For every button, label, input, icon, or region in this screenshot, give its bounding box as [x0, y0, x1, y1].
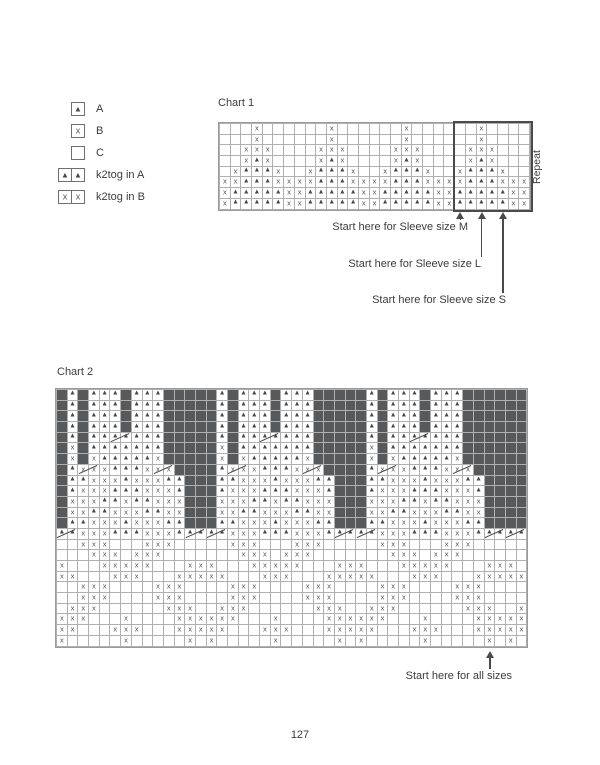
triangle-symbol: ▲ — [254, 189, 261, 196]
chart-cell — [378, 454, 388, 464]
chart-cell — [175, 422, 185, 432]
chart-cell — [346, 454, 356, 464]
chart-cell — [495, 518, 505, 528]
x-symbol: x — [103, 594, 107, 602]
x-symbol: x — [263, 626, 267, 634]
chart-cell: ▲ — [249, 433, 259, 443]
triangle-symbol: ▲ — [475, 487, 482, 494]
chart-cell: x — [239, 497, 249, 507]
x-symbol: x — [81, 497, 85, 505]
chart1-grid: xxxxxxxxxxxxxxxxxxxxx▲xx▲xx▲xx▲xx▲▲▲xx▲▲… — [218, 122, 531, 211]
chart-cell: x — [495, 572, 505, 582]
triangle-symbol: ▲ — [467, 189, 474, 196]
chart-cell: x — [452, 476, 462, 486]
triangle-symbol: ▲ — [112, 498, 119, 505]
chart-cell — [420, 550, 430, 560]
triangle-symbol: ▲ — [368, 391, 375, 398]
chart-cell — [517, 550, 527, 560]
triangle-symbol: ▲ — [475, 477, 482, 484]
chart-cell: ▲ — [477, 177, 487, 187]
chart-cell: x — [431, 561, 441, 571]
triangle-symbol: ▲ — [262, 466, 269, 473]
chart-cell: ▲ — [100, 433, 110, 443]
chart-cell: x — [466, 145, 476, 155]
chart-cell: ▲ — [442, 390, 452, 400]
triangle-symbol: ▲ — [264, 200, 271, 207]
x-symbol: x — [284, 476, 288, 484]
triangle-symbol: ▲ — [101, 444, 108, 451]
chart-cell — [506, 390, 516, 400]
chart-cell — [164, 411, 174, 421]
x-symbol: x — [362, 178, 366, 186]
chart-cell — [175, 443, 185, 453]
arrow-stem — [460, 218, 462, 220]
chart-cell: x — [281, 518, 291, 528]
x-symbol: x — [231, 465, 235, 473]
chart-cell — [57, 582, 67, 592]
chart-cell: ▲ — [292, 401, 302, 411]
chart-cell: ▲ — [271, 476, 281, 486]
chart-cell: x — [110, 518, 120, 528]
chart-cell — [485, 390, 495, 400]
chart-cell: x — [100, 476, 110, 486]
x-symbol: x — [330, 146, 334, 154]
x-symbol: x — [81, 465, 85, 473]
x-symbol: x — [71, 444, 75, 452]
triangle-symbol: ▲ — [304, 402, 311, 409]
triangle-symbol: ▲ — [294, 434, 301, 441]
chart-cell: ▲ — [231, 188, 241, 198]
triangle-symbol: ▲ — [339, 200, 346, 207]
chart-cell — [335, 411, 345, 421]
x-symbol: x — [394, 157, 398, 165]
triangle-symbol: ▲ — [475, 530, 482, 537]
chart-cell: x — [185, 625, 195, 635]
triangle-symbol: ▲ — [454, 444, 461, 451]
x-symbol: x — [455, 594, 459, 602]
chart-cell — [121, 593, 131, 603]
chart-cell: x — [89, 529, 99, 539]
triangle-symbol: ▲ — [232, 189, 239, 196]
chart-cell — [434, 145, 444, 155]
chart-cell — [455, 124, 465, 134]
chart-cell — [100, 572, 110, 582]
chart-cell: x — [410, 508, 420, 518]
chart-cell — [263, 124, 273, 134]
chart-cell: ▲ — [121, 443, 131, 453]
chart-cell: x — [132, 561, 142, 571]
chart-cell: ▲ — [58, 168, 72, 182]
chart-cell: x — [252, 124, 262, 134]
chart-cell — [412, 124, 422, 134]
chart-cell — [356, 540, 366, 550]
chart-cell: ▲ — [68, 422, 78, 432]
x-symbol: x — [338, 561, 342, 569]
x-symbol: x — [92, 551, 96, 559]
x-symbol: x — [381, 594, 385, 602]
chart-cell — [284, 156, 294, 166]
chart-cell: x — [185, 604, 195, 614]
triangle-symbol: ▲ — [254, 200, 261, 207]
chart-cell: ▲ — [252, 188, 262, 198]
chart-cell — [346, 443, 356, 453]
chart-cell: x — [78, 508, 88, 518]
chart-cell: x — [220, 188, 230, 198]
chart-cell — [356, 550, 366, 560]
chart-cell — [495, 443, 505, 453]
triangle-symbol: ▲ — [433, 530, 440, 537]
chart-cell: ▲ — [281, 443, 291, 453]
chart-cell: ▲ — [110, 401, 120, 411]
chart-cell: x — [239, 529, 249, 539]
x-symbol: x — [167, 594, 171, 602]
x-symbol: x — [145, 476, 149, 484]
legend-row: ▲▲k2tog in A — [56, 164, 145, 186]
chart-cell: x — [110, 572, 120, 582]
chart-cell — [303, 604, 313, 614]
chart-cell: x — [164, 593, 174, 603]
chart-cell: ▲ — [367, 518, 377, 528]
chart-cell — [153, 636, 163, 646]
chart-cell — [196, 422, 206, 432]
chart-cell — [485, 411, 495, 421]
chart-cell: ▲ — [100, 454, 110, 464]
x-symbol: x — [402, 583, 406, 591]
chart-cell — [231, 124, 241, 134]
triangle-symbol: ▲ — [390, 509, 397, 516]
chart-cell: x — [346, 614, 356, 624]
x-symbol: x — [210, 626, 214, 634]
chart-cell: ▲ — [100, 390, 110, 400]
chart-cell — [399, 604, 409, 614]
chart-cell — [517, 454, 527, 464]
chart-cell — [346, 390, 356, 400]
triangle-symbol: ▲ — [368, 477, 375, 484]
chart-cell: x — [68, 572, 78, 582]
chart-cell: ▲ — [281, 411, 291, 421]
x-symbol: x — [327, 572, 331, 580]
triangle-symbol: ▲ — [155, 444, 162, 451]
chart-cell — [474, 550, 484, 560]
x-symbol: x — [71, 626, 75, 634]
chart-cell: x — [388, 476, 398, 486]
chart-cell: ▲ — [100, 401, 110, 411]
chart-cell: ▲ — [228, 476, 238, 486]
triangle-symbol: ▲ — [379, 519, 386, 526]
triangle-symbol: ▲ — [294, 498, 301, 505]
triangle-symbol: ▲ — [400, 402, 407, 409]
chart-cell — [249, 636, 259, 646]
chart-cell: ▲ — [132, 411, 142, 421]
chart-cell: ▲ — [271, 486, 281, 496]
chart-cell — [348, 124, 358, 134]
triangle-symbol: ▲ — [251, 391, 258, 398]
chart-cell: ▲ — [303, 508, 313, 518]
triangle-symbol: ▲ — [433, 444, 440, 451]
x-symbol: x — [145, 561, 149, 569]
chart-cell — [380, 135, 390, 145]
chart-cell — [121, 604, 131, 614]
chart-cell — [463, 422, 473, 432]
chart-cell — [228, 561, 238, 571]
triangle-symbol: ▲ — [91, 391, 98, 398]
triangle-symbol: ▲ — [262, 434, 269, 441]
chart-cell — [335, 433, 345, 443]
chart-cell: ▲ — [228, 518, 238, 528]
chart-cell: x — [68, 497, 78, 507]
triangle-symbol: ▲ — [411, 391, 418, 398]
chart-cell: ▲ — [487, 199, 497, 209]
chart-cell: x — [249, 465, 259, 475]
chart-cell — [220, 167, 230, 177]
chart-cell: x — [327, 145, 337, 155]
empty-box-icon — [56, 146, 85, 160]
chart-cell — [273, 156, 283, 166]
chart-cell: x — [249, 540, 259, 550]
chart-cell: x — [474, 614, 484, 624]
chart-cell — [335, 465, 345, 475]
chart-cell — [207, 486, 217, 496]
chart-cell: x — [260, 518, 270, 528]
chart-cell: x — [306, 167, 316, 177]
chart-cell — [196, 508, 206, 518]
chart-cell: x — [284, 188, 294, 198]
chart-cell: ▲ — [367, 401, 377, 411]
x-in-box-icon: x — [56, 124, 85, 138]
chart-cell: ▲ — [292, 390, 302, 400]
chart-cell — [185, 390, 195, 400]
chart-cell: x — [442, 476, 452, 486]
x-symbol: x — [113, 476, 117, 484]
triangle-symbol: ▲ — [368, 412, 375, 419]
chart-cell: x — [477, 135, 487, 145]
triangle-symbol: ▲ — [264, 189, 271, 196]
chart-cell — [466, 124, 476, 134]
triangle-symbol: ▲ — [403, 168, 410, 175]
x-symbol: x — [466, 497, 470, 505]
chart-cell — [423, 124, 433, 134]
chart-cell: x — [164, 582, 174, 592]
chart-cell: x — [132, 518, 142, 528]
chart-cell: ▲ — [132, 454, 142, 464]
chart-cell — [217, 636, 227, 646]
triangle-symbol: ▲ — [400, 412, 407, 419]
x-symbol: x — [455, 551, 459, 559]
x-symbol: x — [455, 519, 459, 527]
chart-cell: ▲ — [423, 188, 433, 198]
x-symbol: x — [434, 519, 438, 527]
chart-cell — [485, 465, 495, 475]
chart-cell: x — [164, 604, 174, 614]
chart-cell: ▲ — [463, 518, 473, 528]
sleeve-size-s-label: Start here for Sleeve size S — [372, 294, 506, 306]
chart-cell — [410, 582, 420, 592]
triangle-symbol: ▲ — [454, 434, 461, 441]
triangle-symbol: ▲ — [467, 178, 474, 185]
chart-cell: x — [89, 593, 99, 603]
chart-cell: ▲ — [132, 401, 142, 411]
triangle-symbol: ▲ — [243, 189, 250, 196]
chart-cell: x — [57, 636, 67, 646]
chart-cell: x — [239, 518, 249, 528]
chart-cell: ▲ — [241, 177, 251, 187]
arrow-stem — [502, 218, 504, 293]
chart-cell: ▲ — [292, 422, 302, 432]
x-symbol: x — [255, 124, 259, 132]
chart-cell — [463, 390, 473, 400]
chart-cell — [207, 390, 217, 400]
triangle-symbol: ▲ — [507, 530, 514, 537]
chart-cell: x — [442, 486, 452, 496]
chart-cell: x — [292, 540, 302, 550]
chart-cell — [519, 124, 529, 134]
triangle-symbol: ▲ — [101, 391, 108, 398]
chart-cell: x — [292, 518, 302, 528]
x-symbol: x — [381, 465, 385, 473]
x-symbol: x — [381, 529, 385, 537]
x-symbol: x — [362, 189, 366, 197]
chart-cell: x — [399, 486, 409, 496]
chart-cell: ▲ — [420, 486, 430, 496]
triangle-symbol: ▲ — [411, 487, 418, 494]
chart-cell: x — [346, 625, 356, 635]
triangle-symbol: ▲ — [414, 178, 421, 185]
chart-cell: x — [402, 145, 412, 155]
chart-cell — [356, 476, 366, 486]
k2tog-triangle-icon: ▲▲ — [56, 168, 85, 182]
triangle-symbol: ▲ — [101, 402, 108, 409]
chart-cell: ▲ — [252, 199, 262, 209]
x-symbol: x — [156, 455, 160, 463]
chart-cell — [388, 636, 398, 646]
chart-cell: x — [185, 561, 195, 571]
triangle-symbol: ▲ — [392, 189, 399, 196]
chart-cell: x — [249, 518, 259, 528]
chart-cell: x — [164, 486, 174, 496]
chart-cell: x — [431, 572, 441, 582]
chart-cell — [378, 411, 388, 421]
chart-cell — [495, 433, 505, 443]
chart-cell — [370, 124, 380, 134]
chart-cell: x — [410, 572, 420, 582]
x-symbol: x — [113, 519, 117, 527]
x-symbol: x — [373, 189, 377, 197]
chart-cell: x — [399, 529, 409, 539]
x-symbol: x — [413, 519, 417, 527]
chart-cell — [196, 465, 206, 475]
chart-cell: ▲ — [252, 167, 262, 177]
x-symbol: x — [391, 476, 395, 484]
triangle-symbol: ▲ — [251, 498, 258, 505]
x-symbol: x — [306, 497, 310, 505]
chart-cell: x — [474, 593, 484, 603]
chart-cell: x — [228, 497, 238, 507]
chart-cell — [444, 145, 454, 155]
chart-cell: x — [132, 476, 142, 486]
x-symbol: x — [426, 167, 430, 175]
chart-cell: ▲ — [239, 422, 249, 432]
triangle-symbol: ▲ — [304, 412, 311, 419]
chart-cell — [241, 135, 251, 145]
chart-cell: x — [271, 625, 281, 635]
chart-cell: ▲ — [292, 508, 302, 518]
chart-cell — [78, 411, 88, 421]
chart-cell: ▲ — [217, 422, 227, 432]
chart-cell: ▲ — [175, 518, 185, 528]
chart-cell: x — [399, 550, 409, 560]
chart-cell: ▲ — [153, 422, 163, 432]
x-symbol: x — [306, 551, 310, 559]
chart-cell: ▲ — [431, 486, 441, 496]
triangle-symbol: ▲ — [262, 402, 269, 409]
x-symbol: x — [92, 540, 96, 548]
chart-cell — [452, 636, 462, 646]
triangle-symbol: ▲ — [69, 519, 76, 526]
chart-cell — [463, 401, 473, 411]
chart-cell: x — [420, 561, 430, 571]
triangle-symbol: ▲ — [262, 444, 269, 451]
triangle-symbol: ▲ — [133, 423, 140, 430]
x-symbol: x — [220, 615, 224, 623]
x-symbol: x — [210, 615, 214, 623]
chart-cell: ▲ — [260, 529, 270, 539]
chart-cell: ▲ — [303, 390, 313, 400]
chart-cell: ▲ — [498, 188, 508, 198]
chart-cell — [121, 411, 131, 421]
chart-cell: ▲ — [442, 411, 452, 421]
triangle-symbol: ▲ — [74, 104, 82, 113]
chart-cell: ▲ — [217, 433, 227, 443]
chart-cell: x — [474, 625, 484, 635]
chart-cell — [367, 540, 377, 550]
chart-cell — [175, 401, 185, 411]
chart-cell: x — [367, 604, 377, 614]
x-symbol: x — [437, 199, 441, 207]
chart-cell: ▲ — [78, 518, 88, 528]
x-symbol: x — [487, 636, 491, 644]
x-symbol: x — [445, 529, 449, 537]
chart-cell: x — [391, 156, 401, 166]
chart-cell: x — [153, 497, 163, 507]
chart-cell: x — [356, 625, 366, 635]
chart-cell: ▲ — [132, 497, 142, 507]
chart-cell — [434, 124, 444, 134]
x-symbol: x — [522, 199, 526, 207]
triangle-symbol: ▲ — [403, 200, 410, 207]
chart-cell: ▲ — [164, 518, 174, 528]
chart-cell — [314, 614, 324, 624]
triangle-symbol: ▲ — [433, 466, 440, 473]
chart-cell — [487, 124, 497, 134]
x-symbol: x — [370, 626, 374, 634]
chart-cell — [420, 401, 430, 411]
chart-cell — [196, 454, 206, 464]
chart-cell: x — [252, 135, 262, 145]
x-symbol: x — [370, 604, 374, 612]
triangle-symbol: ▲ — [304, 509, 311, 516]
chart-cell — [359, 124, 369, 134]
chart-cell: ▲ — [420, 443, 430, 453]
chart-cell: ▲ — [68, 476, 78, 486]
chart-cell — [78, 454, 88, 464]
chart-cell: x — [356, 561, 366, 571]
chart-cell: x — [452, 593, 462, 603]
chart-cell: x — [303, 540, 313, 550]
x-symbol: x — [284, 572, 288, 580]
x-symbol: x — [370, 615, 374, 623]
x-symbol: x — [466, 594, 470, 602]
x-symbol: x — [341, 146, 345, 154]
